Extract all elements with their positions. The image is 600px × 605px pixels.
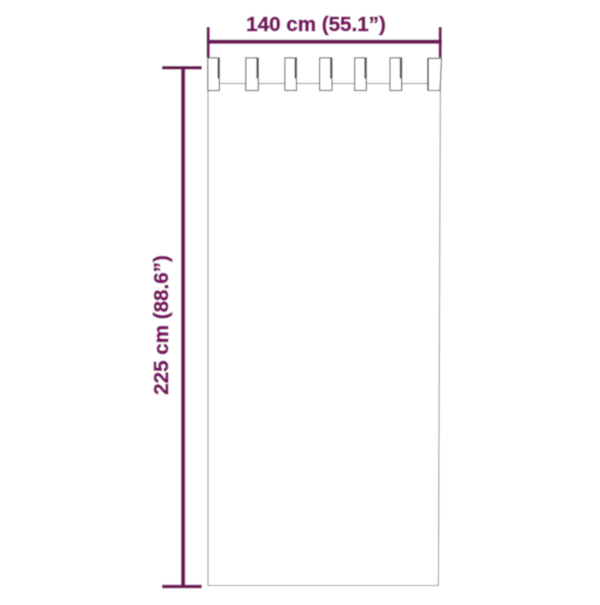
svg-text:225 cm (88.6”): 225 cm (88.6”) — [150, 255, 173, 395]
svg-text:140 cm (55.1”): 140 cm (55.1”) — [246, 13, 386, 36]
